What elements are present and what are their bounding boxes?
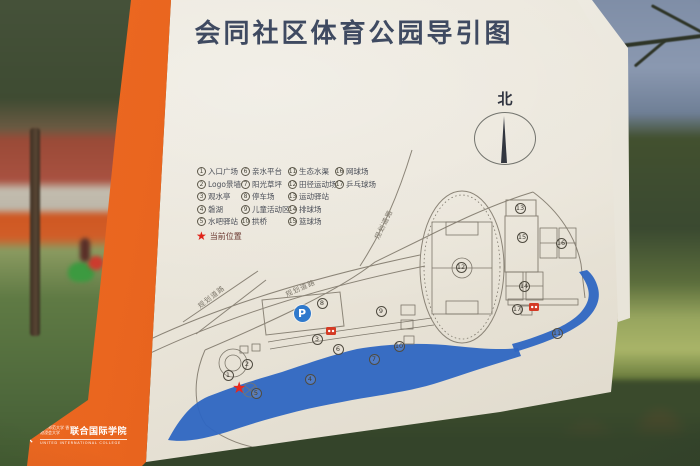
map-marker-8: 8 bbox=[317, 298, 328, 309]
playground-toy bbox=[88, 256, 104, 270]
map-marker-12: 12 bbox=[456, 262, 467, 273]
map-marker-9: 9 bbox=[376, 306, 387, 317]
college-name-cn: 联合国际学院 bbox=[70, 424, 127, 437]
map-marker-3: 3 bbox=[312, 334, 323, 345]
current-location-star: ★ bbox=[232, 380, 246, 396]
map-marker-16: 16 bbox=[556, 238, 567, 249]
map-marker-11: 11 bbox=[552, 328, 563, 339]
map-marker-10: 10 bbox=[394, 341, 405, 352]
toilet-icon bbox=[326, 327, 336, 335]
map-marker-14: 14 bbox=[519, 281, 530, 292]
map-marker-15: 15 bbox=[517, 232, 528, 243]
playground-figure bbox=[80, 238, 90, 262]
park-sign-photo: 会同社区体育公园导引图 北 1入口广场2Logo景墙3观水亭4磐湖5水吧驿站 6… bbox=[0, 0, 700, 466]
background-pole bbox=[30, 128, 40, 336]
map-marker-13: 13 bbox=[515, 203, 526, 214]
map-marker-17: 17 bbox=[512, 304, 523, 315]
map-marker-5: 5 bbox=[251, 388, 262, 399]
logo-divider bbox=[40, 439, 127, 440]
college-name-en: UNITED INTERNATIONAL COLLEGE bbox=[40, 441, 127, 445]
map-marker-4: 4 bbox=[305, 374, 316, 385]
map-marker-7: 7 bbox=[369, 354, 380, 365]
map-marker-6: 6 bbox=[333, 344, 344, 355]
map-marker-2: 2 bbox=[242, 359, 253, 370]
toilet-icon bbox=[529, 303, 539, 311]
parking-icon: P bbox=[294, 305, 311, 322]
